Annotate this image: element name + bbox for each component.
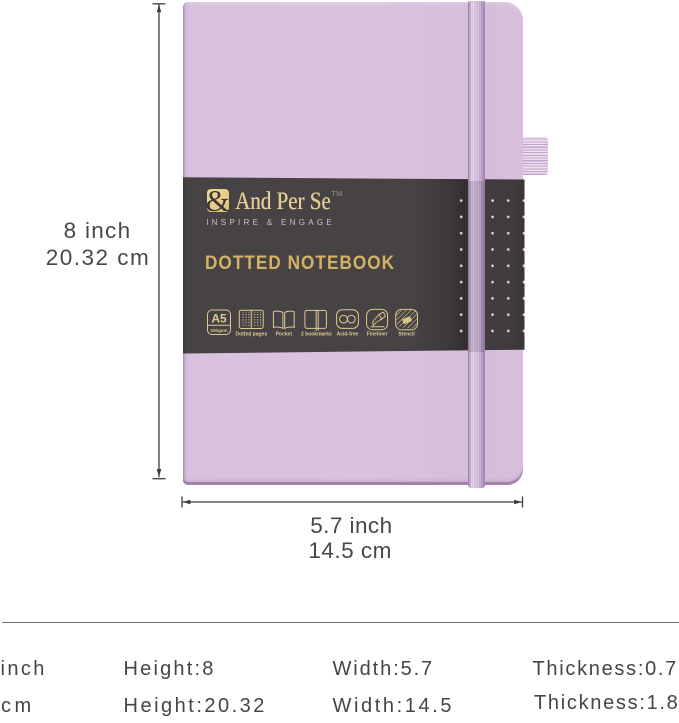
svg-text:Acid-free: Acid-free	[337, 332, 359, 338]
svg-text:Pocket: Pocket	[276, 332, 293, 338]
svg-text:A5: A5	[211, 311, 227, 325]
svg-text:100gsm: 100gsm	[210, 328, 227, 333]
svg-text:Fineliner: Fineliner	[367, 332, 388, 338]
svg-text:2 bookmarks: 2 bookmarks	[301, 332, 332, 338]
svg-text:Dotted pages: Dotted pages	[235, 332, 267, 338]
svg-text:Stencil: Stencil	[398, 332, 415, 338]
